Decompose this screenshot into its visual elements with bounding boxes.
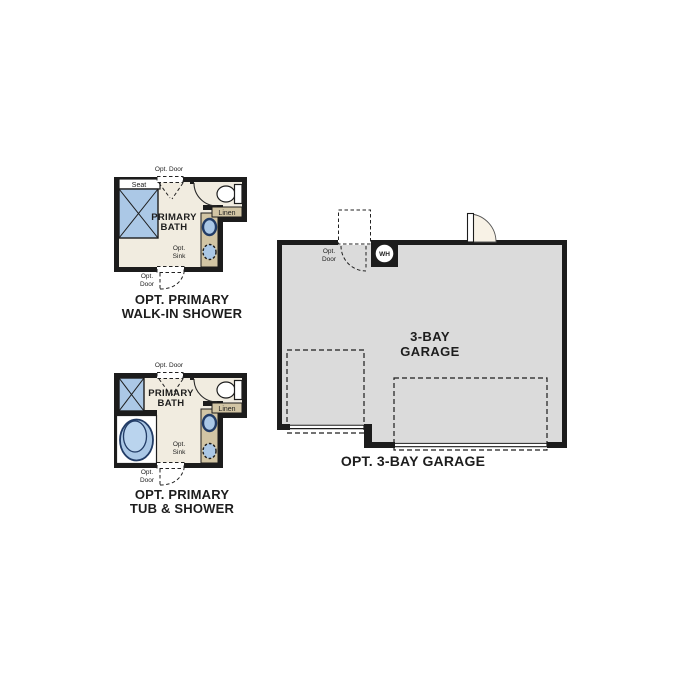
toilet-icon: [217, 381, 242, 400]
optional-sink: [203, 444, 216, 459]
tub-caption-line1: OPT. PRIMARY: [82, 488, 282, 502]
opt-sink-label-line1: Opt.: [173, 245, 185, 252]
garage-door-opening-main: [395, 442, 547, 448]
opt-sink-label-line2: Sink: [173, 253, 186, 260]
garage-label-line2: GARAGE: [400, 344, 459, 359]
optional-sink: [203, 245, 216, 260]
opt-door-bottom-label-line2: Door: [140, 477, 155, 484]
shower: [119, 378, 144, 411]
opt-door-label-line2: Door: [322, 256, 337, 263]
seat-label: Seat: [132, 182, 146, 189]
linen-label: Linen: [218, 406, 235, 413]
bathtub: [117, 416, 157, 464]
opt-door-bottom-label-line1: Opt.: [141, 273, 153, 280]
opt-door-bottom-swing: [160, 273, 184, 289]
floorplan-options-sheet: Linen Seat Opt. Door PRIMARY BATH Opt. S…: [0, 0, 687, 687]
walkin-caption-line2: WALK-IN SHOWER: [82, 307, 282, 321]
opt-door-top-label: Opt. Door: [155, 362, 184, 369]
opt-sink-label-line1: Opt.: [173, 441, 185, 448]
opt-door-bottom-opening: [157, 267, 184, 273]
walkin-shower-caption: OPT. PRIMARY WALK-IN SHOWER: [82, 293, 282, 321]
water-heater-label: WH: [379, 251, 390, 258]
garage-door-opening-left: [290, 424, 364, 430]
walkin-shower-plan: Linen Seat Opt. Door PRIMARY BATH Opt. S…: [105, 160, 255, 295]
tub-shower-caption: OPT. PRIMARY TUB & SHOWER: [82, 488, 282, 516]
sink: [203, 219, 216, 235]
garage-label-line1: 3-BAY: [410, 329, 450, 344]
opt-door-bottom-label-line1: Opt.: [141, 469, 153, 476]
linen-label: Linen: [218, 210, 235, 217]
entry-door: [468, 214, 497, 243]
water-heater: WH: [371, 240, 398, 267]
garage-caption: OPT. 3-BAY GARAGE: [313, 454, 513, 469]
opt-door-top-label: Opt. Door: [155, 166, 184, 173]
opt-door-bottom-opening: [157, 463, 184, 469]
opt-sink-label-line2: Sink: [173, 449, 186, 456]
toilet-icon: [217, 185, 242, 204]
garage-caption-text: OPT. 3-BAY GARAGE: [313, 454, 513, 469]
opt-door-recess: [339, 210, 371, 244]
sink: [203, 415, 216, 431]
opt-door-bottom-swing: [160, 469, 184, 485]
opt-door-top-opening: [157, 177, 183, 183]
opt-door-bottom-label-line2: Door: [140, 281, 155, 288]
opt-door-top-opening: [157, 373, 183, 379]
room-label-line2: BATH: [158, 398, 185, 409]
garage-plan: Opt. Door WH 3-BAY GARAGE: [270, 203, 575, 455]
opt-door-label-line1: Opt.: [323, 248, 335, 255]
walkin-caption-line1: OPT. PRIMARY: [82, 293, 282, 307]
tub-shower-plan: Linen Opt. Door PRIMARY BATH Opt. Sink O: [105, 356, 255, 493]
room-label-line2: BATH: [161, 222, 188, 233]
tub-caption-line2: TUB & SHOWER: [82, 502, 282, 516]
